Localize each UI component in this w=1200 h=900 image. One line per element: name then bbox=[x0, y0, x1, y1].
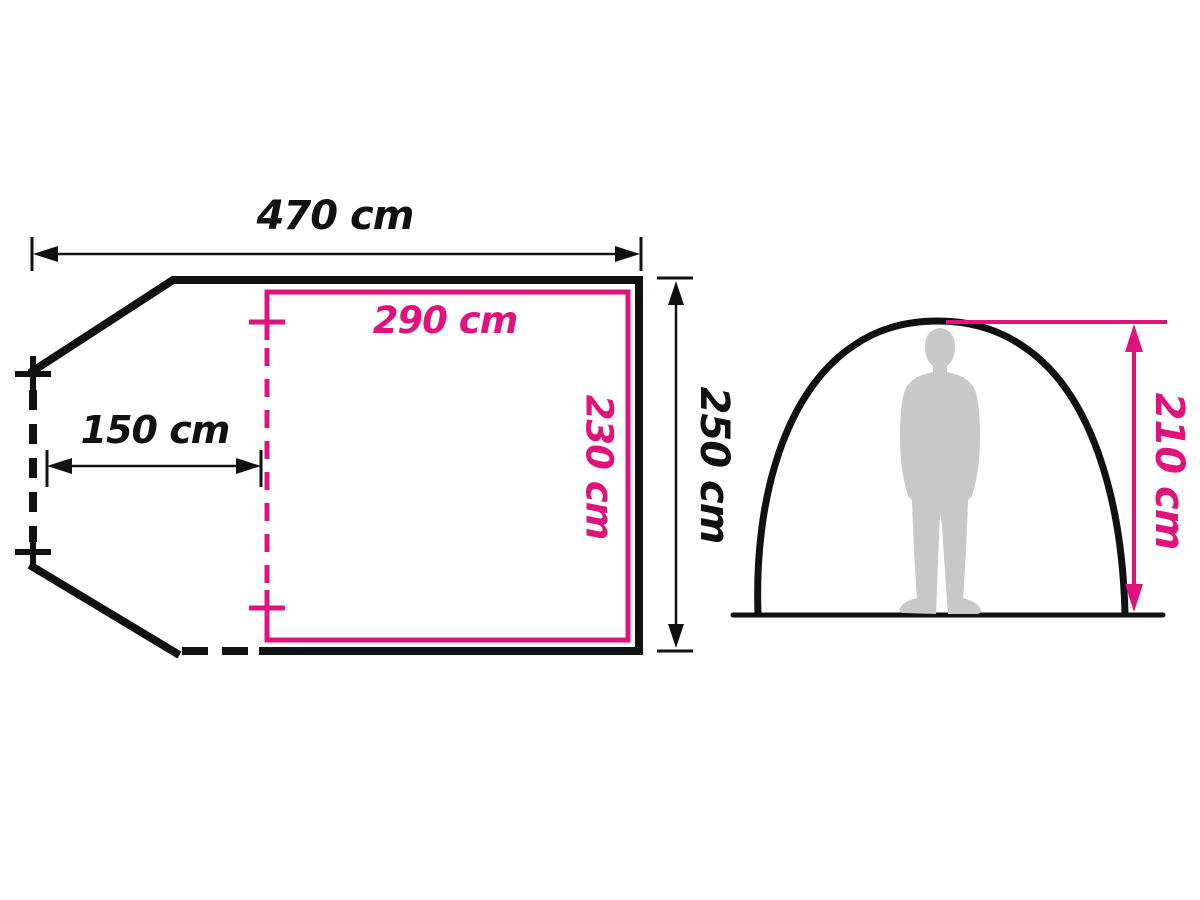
tent-outline-diagonal-bottom-left bbox=[33, 567, 176, 653]
tent-dimensions-diagram: 470 cm 150 cm 250 cm 290 cm bbox=[0, 0, 1200, 900]
arrow-down-icon bbox=[668, 624, 684, 648]
diagram-svg: 470 cm 150 cm 250 cm 290 cm bbox=[0, 0, 1200, 900]
total-depth-label: 250 cm bbox=[691, 387, 737, 544]
arrow-right-icon bbox=[615, 246, 640, 262]
arrow-up-icon bbox=[668, 281, 684, 305]
arrow-right-icon bbox=[236, 458, 261, 474]
inner-room-outline bbox=[267, 292, 628, 640]
arrow-left-icon bbox=[47, 458, 72, 474]
total-width-label: 470 cm bbox=[256, 193, 414, 239]
dimension-peak-height: 210 cm bbox=[946, 322, 1192, 612]
peg-cross-icon-bottom-left bbox=[15, 534, 51, 570]
arrow-left-icon bbox=[33, 246, 58, 262]
arrow-up-icon bbox=[1125, 324, 1143, 352]
side-view: 210 cm bbox=[733, 321, 1192, 615]
vestibule-depth-label: 150 cm bbox=[81, 408, 230, 452]
peg-cross-icon-inner-top bbox=[249, 304, 285, 340]
dimension-total-width: 470 cm bbox=[32, 193, 641, 271]
floor-plan: 470 cm 150 cm 250 cm 290 cm bbox=[15, 193, 737, 653]
peak-height-label: 210 cm bbox=[1146, 393, 1192, 550]
inner-room-depth-label: 230 cm bbox=[578, 395, 621, 540]
person-silhouette bbox=[900, 328, 982, 614]
dimension-vestibule-depth: 150 cm bbox=[47, 408, 261, 487]
inner-room-width-label: 290 cm bbox=[373, 299, 518, 342]
peg-cross-icon-inner-bottom bbox=[249, 590, 285, 626]
dimension-total-depth: 250 cm bbox=[657, 278, 737, 651]
